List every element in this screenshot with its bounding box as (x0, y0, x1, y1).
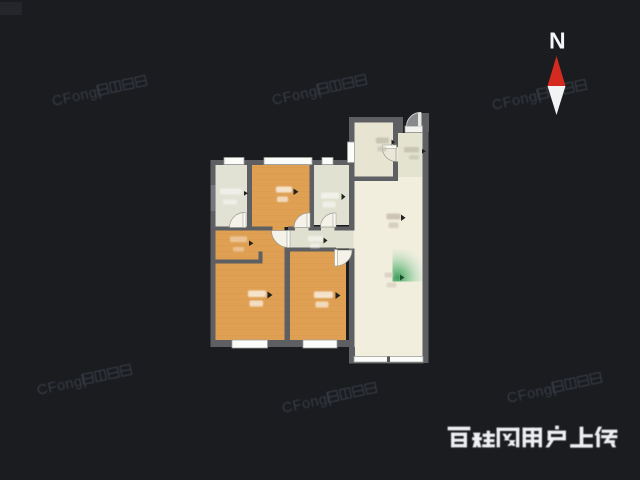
svg-text:N: N (549, 28, 566, 54)
